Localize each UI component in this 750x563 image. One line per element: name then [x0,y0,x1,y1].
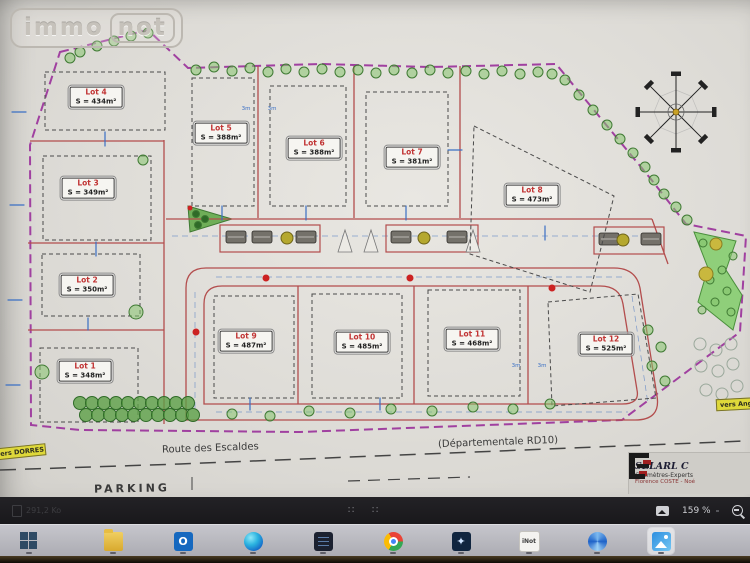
compass-rose [636,72,716,152]
lot-label-4: Lot 4S = 434m² [70,87,123,108]
monitor-bezel [0,556,750,563]
lot-label-9: Lot 9S = 487m² [220,331,273,352]
viewer-tool-icon[interactable]: ∷ [348,505,354,516]
taskbar-blue-swirl-app[interactable] [584,528,610,554]
hedge-trees [74,397,200,422]
subdivision-boundary [30,30,746,432]
taskbar: O ✦ iNot 29°C Ensoleillé [0,524,750,557]
photos-icon [652,532,671,551]
taskbar-outlook[interactable]: O [170,528,196,554]
zoom-out-icon[interactable] [732,505,743,516]
image-viewer-bar: 291,2 Ko ∷ ∷ 159 % [0,497,750,524]
taskbar-inot-app[interactable]: iNot [516,528,542,554]
zoom-level: 159 % [682,506,711,516]
chrome-icon [384,532,403,551]
taskbar-photos-active[interactable] [648,528,674,554]
edge-icon [244,532,263,551]
start-button[interactable] [16,528,42,554]
file-size: 291,2 Ko [26,506,61,515]
windows-logo-icon [20,532,39,551]
lot-label-1: Lot 1S = 348m² [59,361,112,382]
surveyor-block: SELARL C Géomètres-Experts Florence COST… [628,452,750,494]
compass-app-icon: ✦ [452,532,471,551]
taskbar-edge[interactable] [240,528,266,554]
subdivision-plan: immo not Lot 1S = 348m² Lot 2S = 350m² L… [0,0,750,497]
taskbar-chrome[interactable] [380,528,406,554]
setback-3m-label: 3m [538,363,547,369]
road-centerlines [172,236,650,412]
taskbar-notes-app[interactable] [310,528,336,554]
surveyor-logo-icon [629,453,653,479]
file-icon [12,505,22,517]
viewer-tool-icon[interactable]: ∷ [372,505,378,516]
parking-label: PARKING [94,481,170,495]
lot-label-11: Lot 11S = 468m² [446,329,499,350]
notes-app-icon [314,532,333,551]
setback-3m-label: 3m [242,106,251,112]
folder-icon [104,532,123,551]
taskbar-compass-app[interactable]: ✦ [448,528,474,554]
lot-label-5: Lot 5S = 388m² [195,123,248,144]
outlook-icon: O [174,532,193,551]
immonot-watermark: immo not [10,8,183,48]
direction-label-angoustrine: vers Angoustrine [716,397,750,411]
surveyor-partners: Florence COSTE - Noé [635,479,695,486]
immonot-part1: immo [24,15,104,41]
lot-label-6: Lot 6S = 388m² [288,138,341,159]
taskbar-file-explorer[interactable] [100,528,126,554]
lot-label-10: Lot 10S = 485m² [336,332,389,353]
site-plan-drawing [0,0,750,497]
parking-bays [220,225,664,254]
lot-label-2: Lot 2S = 350m² [61,275,114,296]
lot-label-7: Lot 7S = 381m² [386,147,439,168]
blue-swirl-app-icon [588,532,607,551]
lot-label-8: Lot 8S = 473m² [506,185,559,206]
lot-label-3: Lot 3S = 349m² [62,178,115,199]
lot-label-12: Lot 12S = 525m² [580,334,633,355]
setback-3m-label: 3m [268,106,277,112]
picture-icon[interactable] [656,506,669,516]
screen-photo: immo not Lot 1S = 348m² Lot 2S = 350m² L… [0,0,750,563]
setback-3m-label: 3m [512,363,521,369]
separator-dot [716,510,719,512]
immonot-part2: not [110,13,175,43]
inot-app-icon: iNot [519,531,540,552]
